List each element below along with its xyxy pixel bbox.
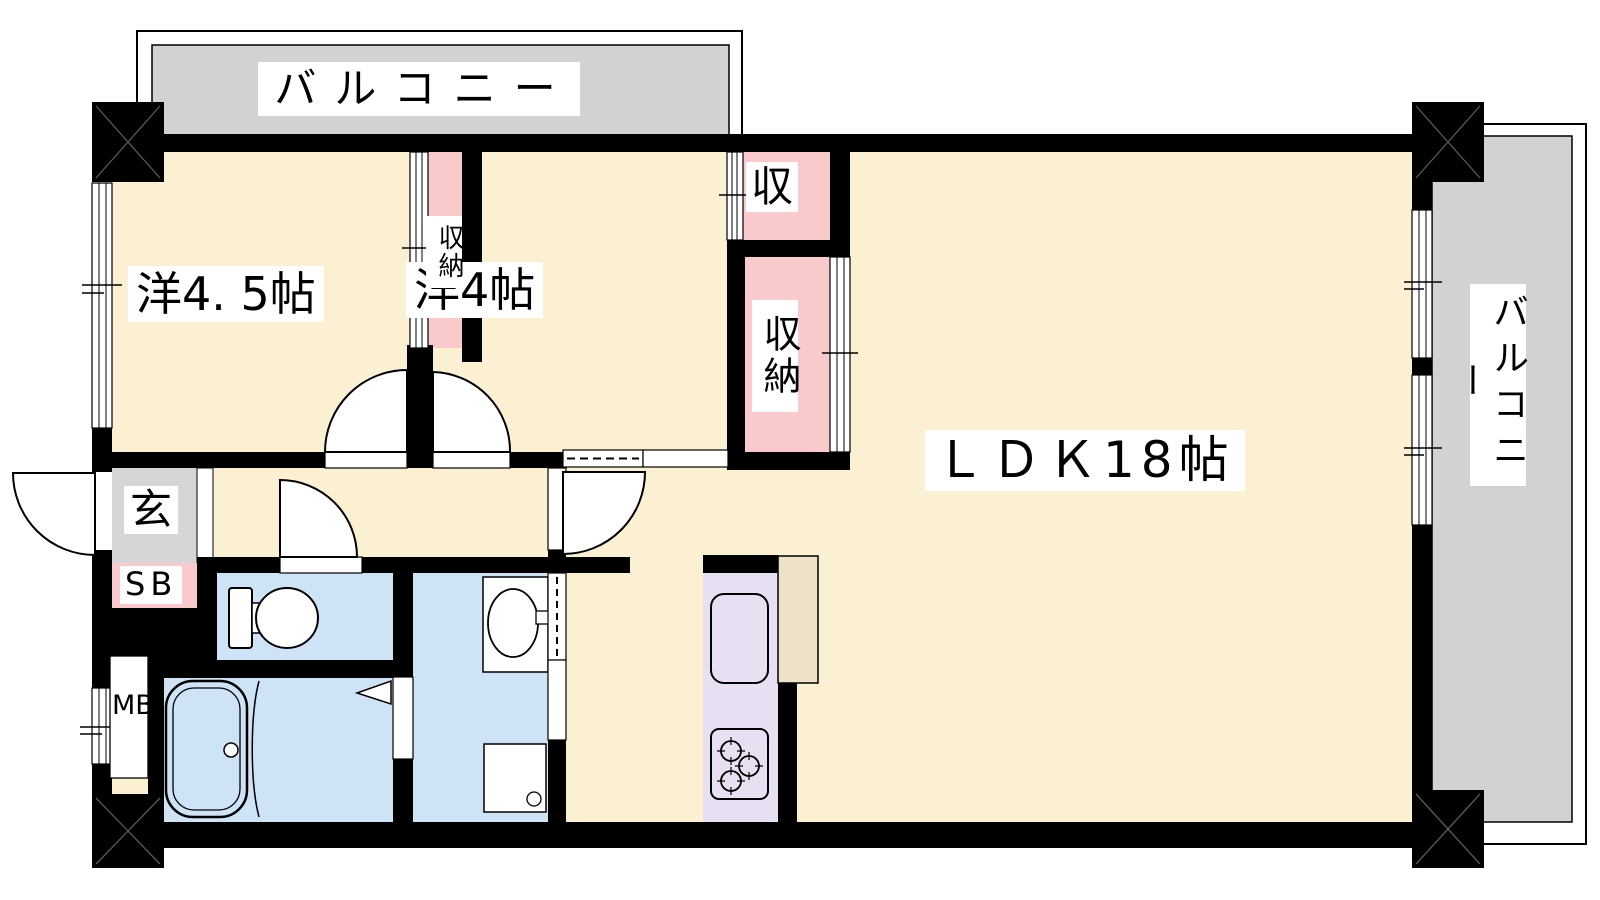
room-45-label: 洋4. 5帖 xyxy=(128,266,324,322)
washing-machine-pan xyxy=(484,744,546,812)
washroom-door-pocket xyxy=(548,660,566,740)
wall-top xyxy=(164,134,1412,152)
bathroom-doorway xyxy=(393,677,413,759)
shoe-box-label: SB xyxy=(120,566,182,604)
wall-bottom xyxy=(164,822,1412,848)
closet-right-label: 収納 xyxy=(752,300,798,412)
closet-center-label: 収納 xyxy=(426,216,462,288)
toilet-fixture xyxy=(229,588,318,648)
entrance-door-swing xyxy=(13,473,95,555)
ldk-label: ＬＤＫ18帖 xyxy=(925,430,1245,491)
counter-side-unit xyxy=(778,556,818,683)
entrance-step xyxy=(197,468,213,563)
closet-top-right-label: 収 xyxy=(746,162,798,212)
kitchen-sink xyxy=(711,594,768,683)
entrance-label: 玄 xyxy=(124,486,178,534)
bathroom-fill xyxy=(163,678,393,822)
tub-drain-knob xyxy=(224,743,238,757)
floor-plan: バルコニー バルコニー 洋4. 5帖 洋4帖 収納 収 収納 ＬＤＫ18帖 玄 … xyxy=(0,0,1600,900)
floor-plan-drawing xyxy=(0,0,1600,900)
sliding-door-panel xyxy=(643,450,728,467)
drain xyxy=(527,792,541,806)
balcony-top-label: バルコニー xyxy=(258,62,580,116)
meter-box-label: MB xyxy=(112,690,148,722)
balcony-right-label: バルコニー xyxy=(1470,284,1526,486)
